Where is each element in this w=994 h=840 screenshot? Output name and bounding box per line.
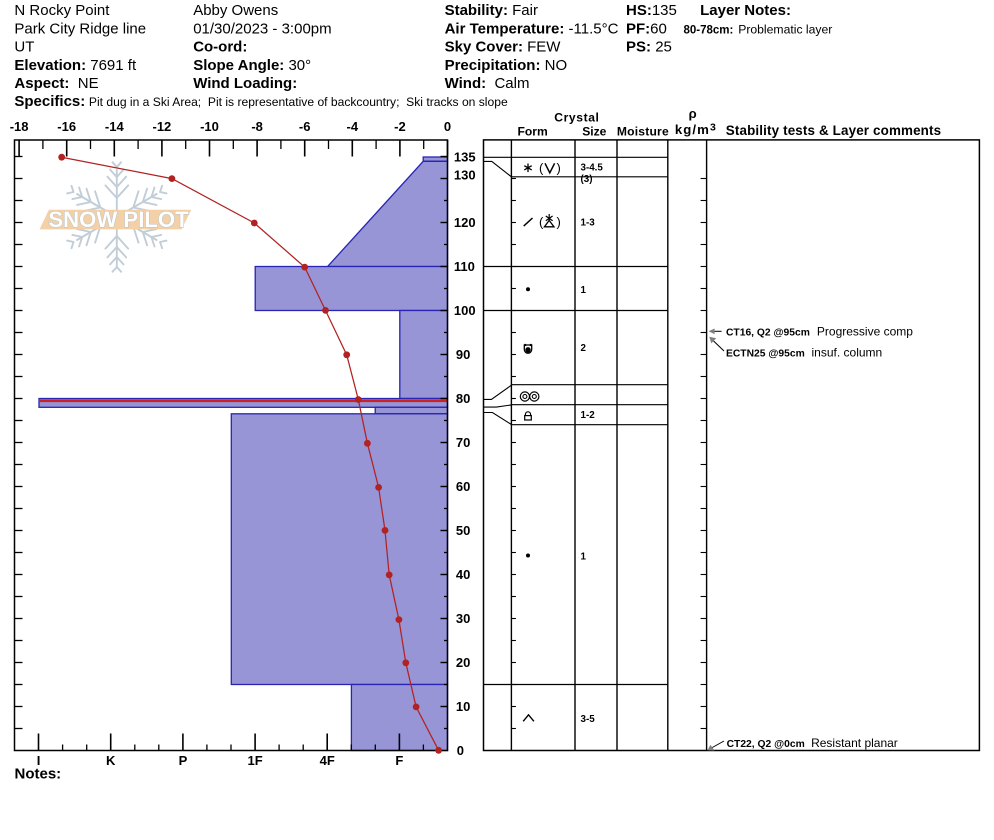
svg-text:100: 100 (454, 303, 476, 318)
svg-text:-8: -8 (251, 119, 263, 134)
svg-text:N Rocky Point: N Rocky Point (14, 2, 110, 19)
svg-text:Aspect: NE: Aspect: NE (14, 75, 98, 92)
svg-text:Slope Angle: 30°: Slope Angle: 30° (193, 57, 311, 74)
svg-text:Stability tests & Layer commen: Stability tests & Layer comments (726, 123, 941, 138)
svg-text:40: 40 (456, 567, 470, 582)
svg-text:Notes:: Notes: (15, 766, 62, 783)
svg-text:-10: -10 (200, 119, 219, 134)
svg-text:Layer Notes:: Layer Notes: (700, 2, 791, 19)
svg-text:ECTN25 @95cm: ECTN25 @95cm (726, 348, 805, 359)
svg-text:20: 20 (456, 655, 470, 670)
svg-text:1: 1 (581, 285, 587, 296)
svg-text:Resistant planar: Resistant planar (811, 736, 898, 750)
svg-text:): ) (557, 215, 561, 230)
svg-text:Park City Ridge line: Park City Ridge line (14, 20, 146, 37)
svg-text:HS:135: HS:135 (626, 2, 677, 19)
svg-text:CT22, Q2 @0cm: CT22, Q2 @0cm (727, 739, 805, 750)
svg-text:1: 1 (581, 551, 587, 562)
svg-text:SNOW PILOT: SNOW PILOT (48, 207, 189, 232)
svg-text:Specifics:: Specifics: (14, 93, 85, 110)
svg-text:60: 60 (456, 479, 470, 494)
svg-text:135: 135 (454, 149, 476, 164)
svg-text:70: 70 (456, 435, 470, 450)
svg-text:Wind: Calm: Wind: Calm (445, 75, 530, 92)
svg-text:Air Temperature: -11.5°C: Air Temperature: -11.5°C (445, 20, 619, 37)
svg-text:Precipitation: NO: Precipitation: NO (445, 57, 568, 74)
svg-text:30: 30 (456, 611, 470, 626)
svg-text:Progressive comp: Progressive comp (817, 324, 913, 338)
svg-text:insuf. column: insuf. column (812, 345, 883, 359)
svg-text:(3): (3) (581, 174, 593, 185)
svg-text:0: 0 (457, 743, 464, 758)
svg-text:110: 110 (454, 259, 475, 274)
svg-text:10: 10 (456, 699, 470, 714)
svg-text:-6: -6 (299, 119, 311, 134)
svg-text:Problematic layer: Problematic layer (738, 22, 832, 36)
svg-text:Pit dug in a Ski Area; Pit is: Pit dug in a Ski Area; Pit is representa… (89, 95, 508, 109)
svg-text:80: 80 (456, 391, 470, 406)
svg-text:Size: Size (582, 125, 606, 139)
svg-text:3-4.5: 3-4.5 (581, 162, 604, 173)
svg-text:UT: UT (14, 39, 34, 56)
svg-text:3-5: 3-5 (581, 714, 596, 725)
svg-text:(: ( (539, 215, 544, 230)
svg-text:1F: 1F (248, 753, 263, 768)
svg-text:Abby Owens: Abby Owens (193, 2, 278, 19)
svg-text:-18: -18 (10, 119, 29, 134)
svg-text:(: ( (539, 161, 544, 176)
svg-text:-12: -12 (153, 119, 172, 134)
svg-text:P: P (179, 753, 188, 768)
svg-text:Wind Loading:: Wind Loading: (193, 75, 297, 92)
svg-text:PF:60: PF:60 (626, 20, 667, 37)
svg-text:Crystal: Crystal (554, 110, 599, 124)
svg-text:Moisture: Moisture (617, 125, 669, 139)
svg-text:Elevation: 7691 ft: Elevation: 7691 ft (14, 57, 137, 74)
svg-text:130: 130 (454, 168, 476, 183)
svg-text:90: 90 (456, 347, 470, 362)
svg-text:ρ: ρ (689, 106, 697, 121)
svg-text:Stability: Fair: Stability: Fair (445, 2, 538, 19)
svg-text:-14: -14 (105, 119, 125, 134)
svg-text:120: 120 (454, 215, 476, 230)
svg-text:01/30/2023 - 3:00pm: 01/30/2023 - 3:00pm (193, 20, 331, 37)
svg-text:F: F (395, 753, 403, 768)
svg-text:-16: -16 (57, 119, 76, 134)
svg-text:0: 0 (444, 119, 451, 134)
svg-text:2: 2 (581, 343, 587, 354)
svg-text:Sky Cover: FEW: Sky Cover: FEW (445, 39, 562, 56)
svg-text:CT16, Q2 @95cm: CT16, Q2 @95cm (726, 327, 810, 338)
svg-text:PS: 25: PS: 25 (626, 39, 672, 56)
svg-text:80-78cm:: 80-78cm: (684, 24, 734, 36)
svg-text:4F: 4F (320, 753, 335, 768)
svg-text:-2: -2 (394, 119, 406, 134)
svg-text:): ) (557, 161, 561, 176)
svg-text:50: 50 (456, 523, 470, 538)
svg-text:1-3: 1-3 (581, 217, 596, 228)
svg-text:K: K (106, 753, 116, 768)
svg-text:1-2: 1-2 (581, 410, 596, 421)
svg-text:Form: Form (517, 125, 547, 139)
svg-text:Co-ord:: Co-ord: (193, 39, 247, 56)
svg-text:-4: -4 (347, 119, 359, 134)
